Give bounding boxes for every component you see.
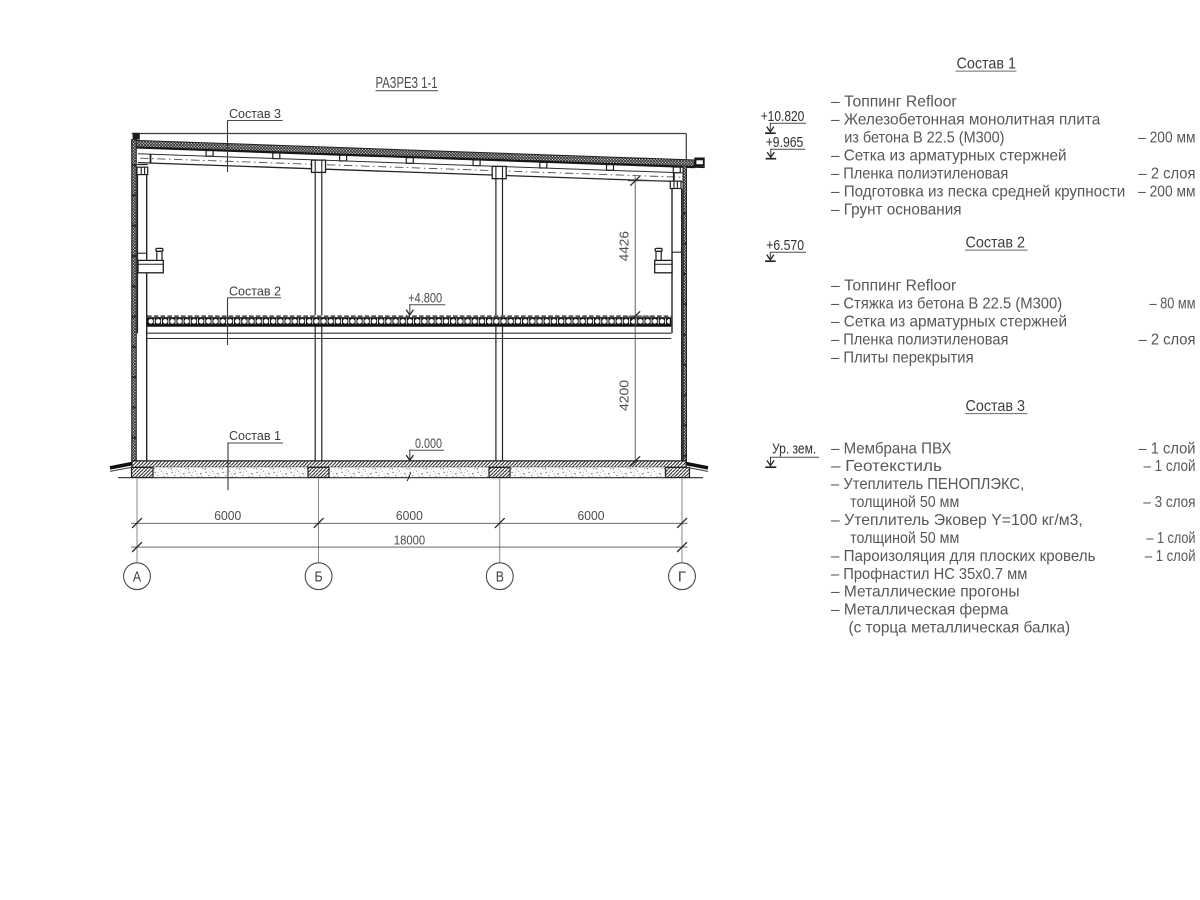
- svg-text:– Утеплитель ПЕНОПЛЭКС,: – Утеплитель ПЕНОПЛЭКС,: [831, 476, 1024, 493]
- svg-text:– Железобетонная монолитная п: – Железобетонная монолитная плита: [831, 112, 1100, 129]
- svg-text:Состав 1: Состав 1: [957, 56, 1017, 73]
- svg-text:6000: 6000: [396, 508, 423, 523]
- svg-text:толщиной 50 мм: толщиной 50 мм: [850, 530, 959, 547]
- svg-text:Состав 2: Состав 2: [229, 283, 281, 298]
- svg-text:– Плиты перекрытия: – Плиты перекрытия: [831, 350, 974, 367]
- svg-text:+10.820: +10.820: [761, 108, 805, 125]
- svg-text:– Геотекстиль: – Геотекстиль: [831, 458, 942, 475]
- svg-text:– Сетка из арматурных стержней: – Сетка из арматурных стержней: [831, 314, 1067, 331]
- svg-text:– Мембрана ПВХ: – Мембрана ПВХ: [831, 440, 952, 457]
- svg-text:– 1 слой: – 1 слой: [1146, 530, 1195, 547]
- svg-text:Состав 2: Состав 2: [966, 235, 1026, 252]
- svg-text:– 1 слой: – 1 слой: [1139, 440, 1196, 457]
- svg-text:– 1 слой: – 1 слой: [1145, 548, 1196, 565]
- svg-text:В: В: [496, 569, 504, 585]
- svg-text:6000: 6000: [578, 508, 605, 523]
- svg-text:– Подготовка из песка средней: – Подготовка из песка средней крупности: [831, 184, 1125, 201]
- svg-text:Г: Г: [678, 569, 686, 585]
- svg-text:А: А: [133, 569, 141, 585]
- svg-text:– 3 слоя: – 3 слоя: [1143, 494, 1195, 511]
- svg-text:4200: 4200: [618, 380, 632, 411]
- svg-text:толщиной 50 мм: толщиной 50 мм: [850, 494, 959, 511]
- svg-text:+4.800: +4.800: [408, 290, 442, 306]
- svg-text:Состав 3: Состав 3: [966, 398, 1026, 415]
- svg-text:– Профнастил НС 35х0.7 мм: – Профнастил НС 35х0.7 мм: [831, 566, 1027, 583]
- svg-text:18000: 18000: [394, 533, 425, 548]
- svg-text:– 2 слоя: – 2 слоя: [1139, 166, 1196, 183]
- svg-text:Состав 1: Состав 1: [229, 428, 281, 443]
- svg-text:– Пленка полиэтиленовая: – Пленка полиэтиленовая: [831, 166, 1008, 183]
- svg-text:– Топпинг Refloor: – Топпинг Refloor: [831, 94, 957, 111]
- svg-text:Б: Б: [315, 569, 323, 585]
- svg-text:Состав 3: Состав 3: [229, 106, 281, 121]
- svg-text:– Сетка из арматурных стержней: – Сетка из арматурных стержней: [831, 148, 1067, 165]
- svg-text:6000: 6000: [214, 508, 241, 523]
- svg-text:– Стяжка из бетона В 22.5 (М30: – Стяжка из бетона В 22.5 (М300): [831, 296, 1062, 313]
- svg-text:– 1 слой: – 1 слой: [1144, 458, 1196, 475]
- svg-text:– 2 слоя: – 2 слоя: [1139, 332, 1196, 349]
- svg-text:– Пленка полиэтиленовая: – Пленка полиэтиленовая: [831, 332, 1008, 349]
- svg-text:+6.570: +6.570: [766, 237, 804, 254]
- svg-text:Ур. зем.: Ур. зем.: [772, 441, 816, 458]
- svg-text:– Грунт основания: – Грунт основания: [831, 202, 962, 219]
- svg-text:0.000: 0.000: [415, 435, 442, 451]
- svg-text:– Топпинг Refloor: – Топпинг Refloor: [831, 278, 957, 295]
- svg-text:– Пароизоляция для плоских кро: – Пароизоляция для плоских кровель: [831, 548, 1096, 565]
- svg-text:– 200 мм: – 200 мм: [1138, 130, 1195, 147]
- svg-text:– Металлические прогоны: – Металлические прогоны: [831, 584, 1020, 601]
- svg-text:– 80 мм: – 80 мм: [1150, 296, 1196, 313]
- svg-text:+9.965: +9.965: [766, 134, 804, 151]
- svg-text:из бетона В 22.5 (М300): из бетона В 22.5 (М300): [844, 130, 1004, 147]
- svg-text:– Металлическая ферма: – Металлическая ферма: [831, 602, 1008, 619]
- svg-text:РАЗРЕЗ 1-1: РАЗРЕЗ 1-1: [376, 75, 438, 92]
- svg-text:4426: 4426: [617, 231, 631, 261]
- svg-text:– 200 мм: – 200 мм: [1138, 184, 1195, 201]
- svg-text:(с торца металлическая балка): (с торца металлическая балка): [849, 620, 1071, 637]
- svg-text:– Утеплитель Эковер Y=100 кг/м: – Утеплитель Эковер Y=100 кг/м3,: [831, 512, 1083, 529]
